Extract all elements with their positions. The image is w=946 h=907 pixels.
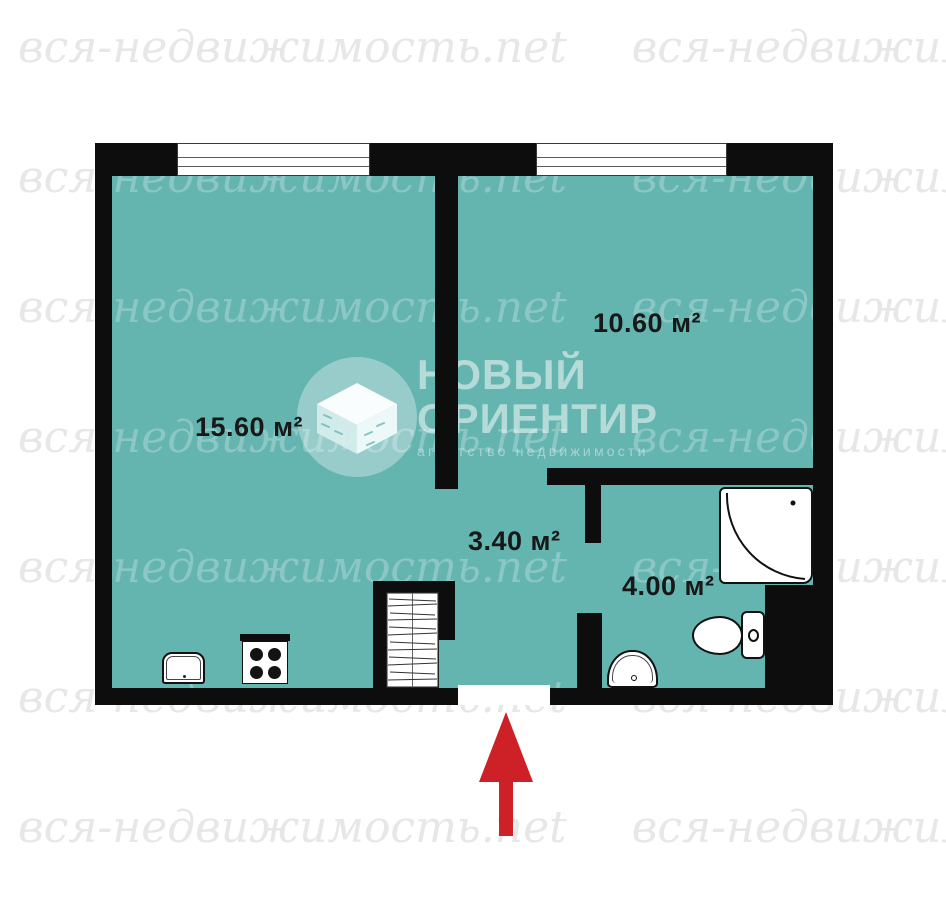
wardrobe-frame [373, 581, 386, 688]
room-area-label: 15.60 м² [195, 412, 303, 443]
window-icon [177, 143, 370, 176]
wall-bath-divider-lower [577, 613, 602, 688]
stove-burner [250, 666, 263, 679]
stove-counter-edge [240, 634, 290, 641]
toilet-tank [741, 611, 765, 659]
wardrobe-frame [439, 581, 455, 640]
window-pane-line [537, 157, 726, 158]
window-pane-line [178, 157, 369, 158]
stove-burner [268, 648, 281, 661]
watermark-text: вся-недвижимость.net [632, 22, 946, 73]
window-icon [536, 143, 727, 176]
floor-plan-page: { "colors": { "room_fill": "#64b4b0", "w… [0, 0, 946, 907]
watermark-text: вся-недвижимость.net [112, 282, 567, 333]
corner-shower-icon [719, 487, 813, 584]
kitchen-sink-drain [183, 675, 186, 678]
watermark-row: вся-недвижимость.netвся-недвижимость.net [18, 22, 946, 73]
wall-corner-shaft [765, 585, 813, 688]
watermark-text: вся-недвижимость.net [112, 176, 567, 203]
room-area-label: 4.00 м² [622, 571, 715, 602]
stove-burner-plate [242, 641, 288, 684]
bathroom-sink-drain [631, 675, 637, 681]
isometric-box-icon [297, 357, 417, 477]
floor-plan-interior: вся-недвижимость.netвся-недвижимость.net… [112, 176, 813, 688]
room-area-label: 3.40 м² [468, 526, 561, 557]
wall-bathroom-top [547, 468, 813, 485]
stove-burner [268, 666, 281, 679]
kitchen-sink-icon [162, 652, 205, 684]
watermark-row: вся-недвижимость.netвся-недвижимость.net [112, 176, 813, 203]
toilet-icon [692, 616, 743, 655]
entrance-opening [458, 685, 550, 705]
floor-plan: вся-недвижимость.netвся-недвижимость.net… [95, 143, 833, 705]
watermark-text: вся-недвижимость.net [632, 412, 813, 463]
wall-room-divider [435, 176, 458, 489]
toilet-flush-button [748, 629, 759, 642]
window-pane-line [537, 166, 726, 167]
wardrobe-icon [386, 592, 439, 688]
window-pane-line [178, 166, 369, 167]
watermark-text: вся-недвижимость.net [632, 176, 813, 203]
stove-icon [242, 634, 288, 684]
watermark-row: вся-недвижимость.netвся-недвижимость.net [112, 282, 813, 333]
room-area-label: 10.60 м² [593, 308, 701, 339]
entrance-arrow-icon [479, 710, 533, 836]
watermark-text: вся-недвижимость.net [18, 22, 567, 73]
agency-logo-badge [297, 357, 417, 477]
stove-burner [250, 648, 263, 661]
wall-bath-divider-upper [585, 485, 601, 543]
watermark-text: вся-недвижимость.net [632, 802, 946, 853]
